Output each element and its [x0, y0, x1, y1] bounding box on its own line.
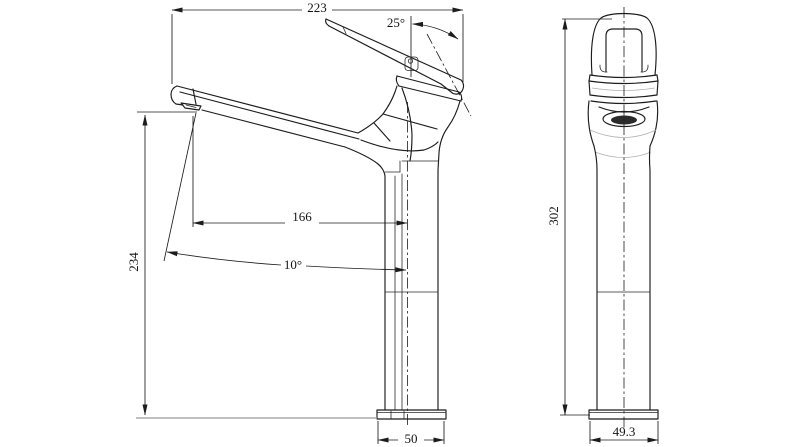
- bonnet-left-cap: [396, 76, 399, 86]
- head-left-edge: [589, 81, 590, 95]
- collar-highlight: [592, 88, 655, 91]
- bulge-construction-arc-2: [595, 152, 651, 158]
- head-facet-1: [374, 123, 390, 141]
- head-left-contour: [358, 86, 397, 133]
- dim-stream-angle: 10°: [164, 113, 406, 272]
- column-left-edge: [345, 147, 385, 410]
- collar-bottom: [589, 81, 658, 84]
- bonnet-top: [397, 76, 459, 92]
- dim-label-overall-width: 223: [307, 0, 327, 15]
- spout-nose: [171, 86, 183, 105]
- spout-top-edge: [177, 86, 358, 133]
- spout-top-inner-edge: [180, 92, 359, 139]
- spout-bottom-edge: [202, 110, 345, 147]
- handle-axis-centerline: [427, 34, 471, 116]
- spout-bulge-right: [650, 101, 658, 146]
- dim-overall-height: 302: [546, 19, 612, 415]
- base-plate-side: [377, 410, 446, 419]
- collar-left-edge: [589, 75, 590, 81]
- collar-right-edge: [657, 75, 658, 81]
- cap-ring-bottom: [591, 101, 656, 104]
- collar-top: [590, 75, 657, 78]
- dim-base-width-side: 50: [378, 421, 444, 446]
- dim-label-handle-angle: 25°: [387, 15, 405, 30]
- base-plate-front: [589, 410, 658, 419]
- dim-handle-angle: 25°: [387, 15, 458, 77]
- dim-label-base-width-side: 50: [405, 431, 418, 446]
- handle-lever-end: [441, 80, 464, 94]
- bulge-construction-arc-1: [590, 130, 656, 138]
- taper-right: [650, 146, 651, 170]
- dim-label-overall-height: 302: [546, 206, 561, 226]
- dim-label-stream-angle: 10°: [284, 257, 302, 272]
- taper-left: [594, 146, 597, 170]
- dim-overall-width: 223: [172, 0, 463, 84]
- cap-ring-top: [590, 95, 657, 98]
- spout-bulge-left: [588, 101, 594, 146]
- head-right-edge: [657, 81, 658, 95]
- head-sweep: [361, 140, 438, 151]
- dim-label-base-width-front: 49.3: [613, 424, 636, 439]
- angle-leader: [306, 266, 406, 270]
- angle-arc: [413, 24, 459, 39]
- handle-lever-bottom: [329, 26, 441, 84]
- side-view: 223 25° 166 234 10°: [126, 0, 471, 446]
- handle-pivot-pin: [408, 59, 412, 63]
- dim-base-width-front: 49.3: [590, 421, 658, 444]
- stream-axis-line: [164, 113, 196, 261]
- bonnet-bottom: [399, 86, 461, 101]
- column-right-edge: [438, 101, 460, 410]
- technical-drawing-canvas: 223 25° 166 234 10°: [0, 0, 800, 447]
- angle-leader: [167, 252, 281, 265]
- dim-label-spout-reach: 166: [292, 209, 312, 224]
- front-view: 302 49.3: [546, 7, 658, 444]
- faucet-front-outline: [588, 7, 658, 428]
- dim-spout-reach: 166: [193, 116, 407, 227]
- faucet-dimension-drawing: 223 25° 166 234 10°: [0, 0, 800, 447]
- dim-label-spout-height: 234: [126, 252, 141, 272]
